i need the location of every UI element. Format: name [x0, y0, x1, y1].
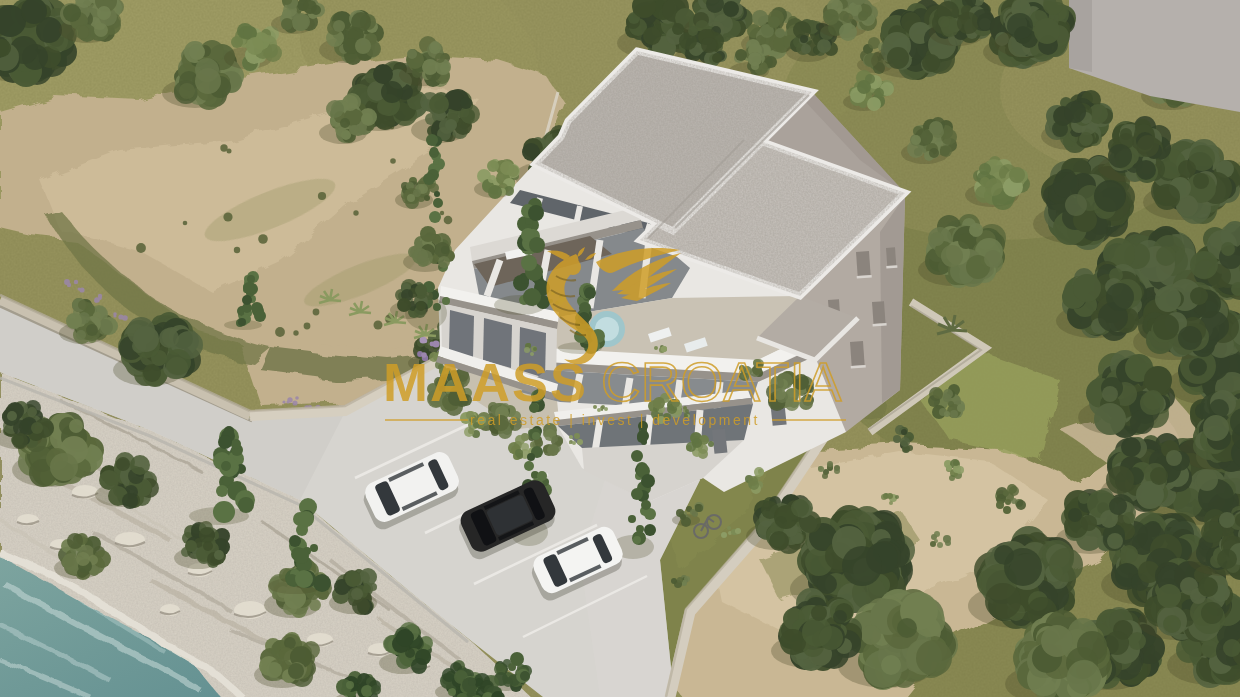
svg-text:real estate | invest | develop: real estate | invest | development — [470, 412, 760, 428]
svg-text:CROATIA: CROATIA — [601, 351, 842, 413]
svg-text:MAASS: MAASS — [383, 352, 588, 412]
